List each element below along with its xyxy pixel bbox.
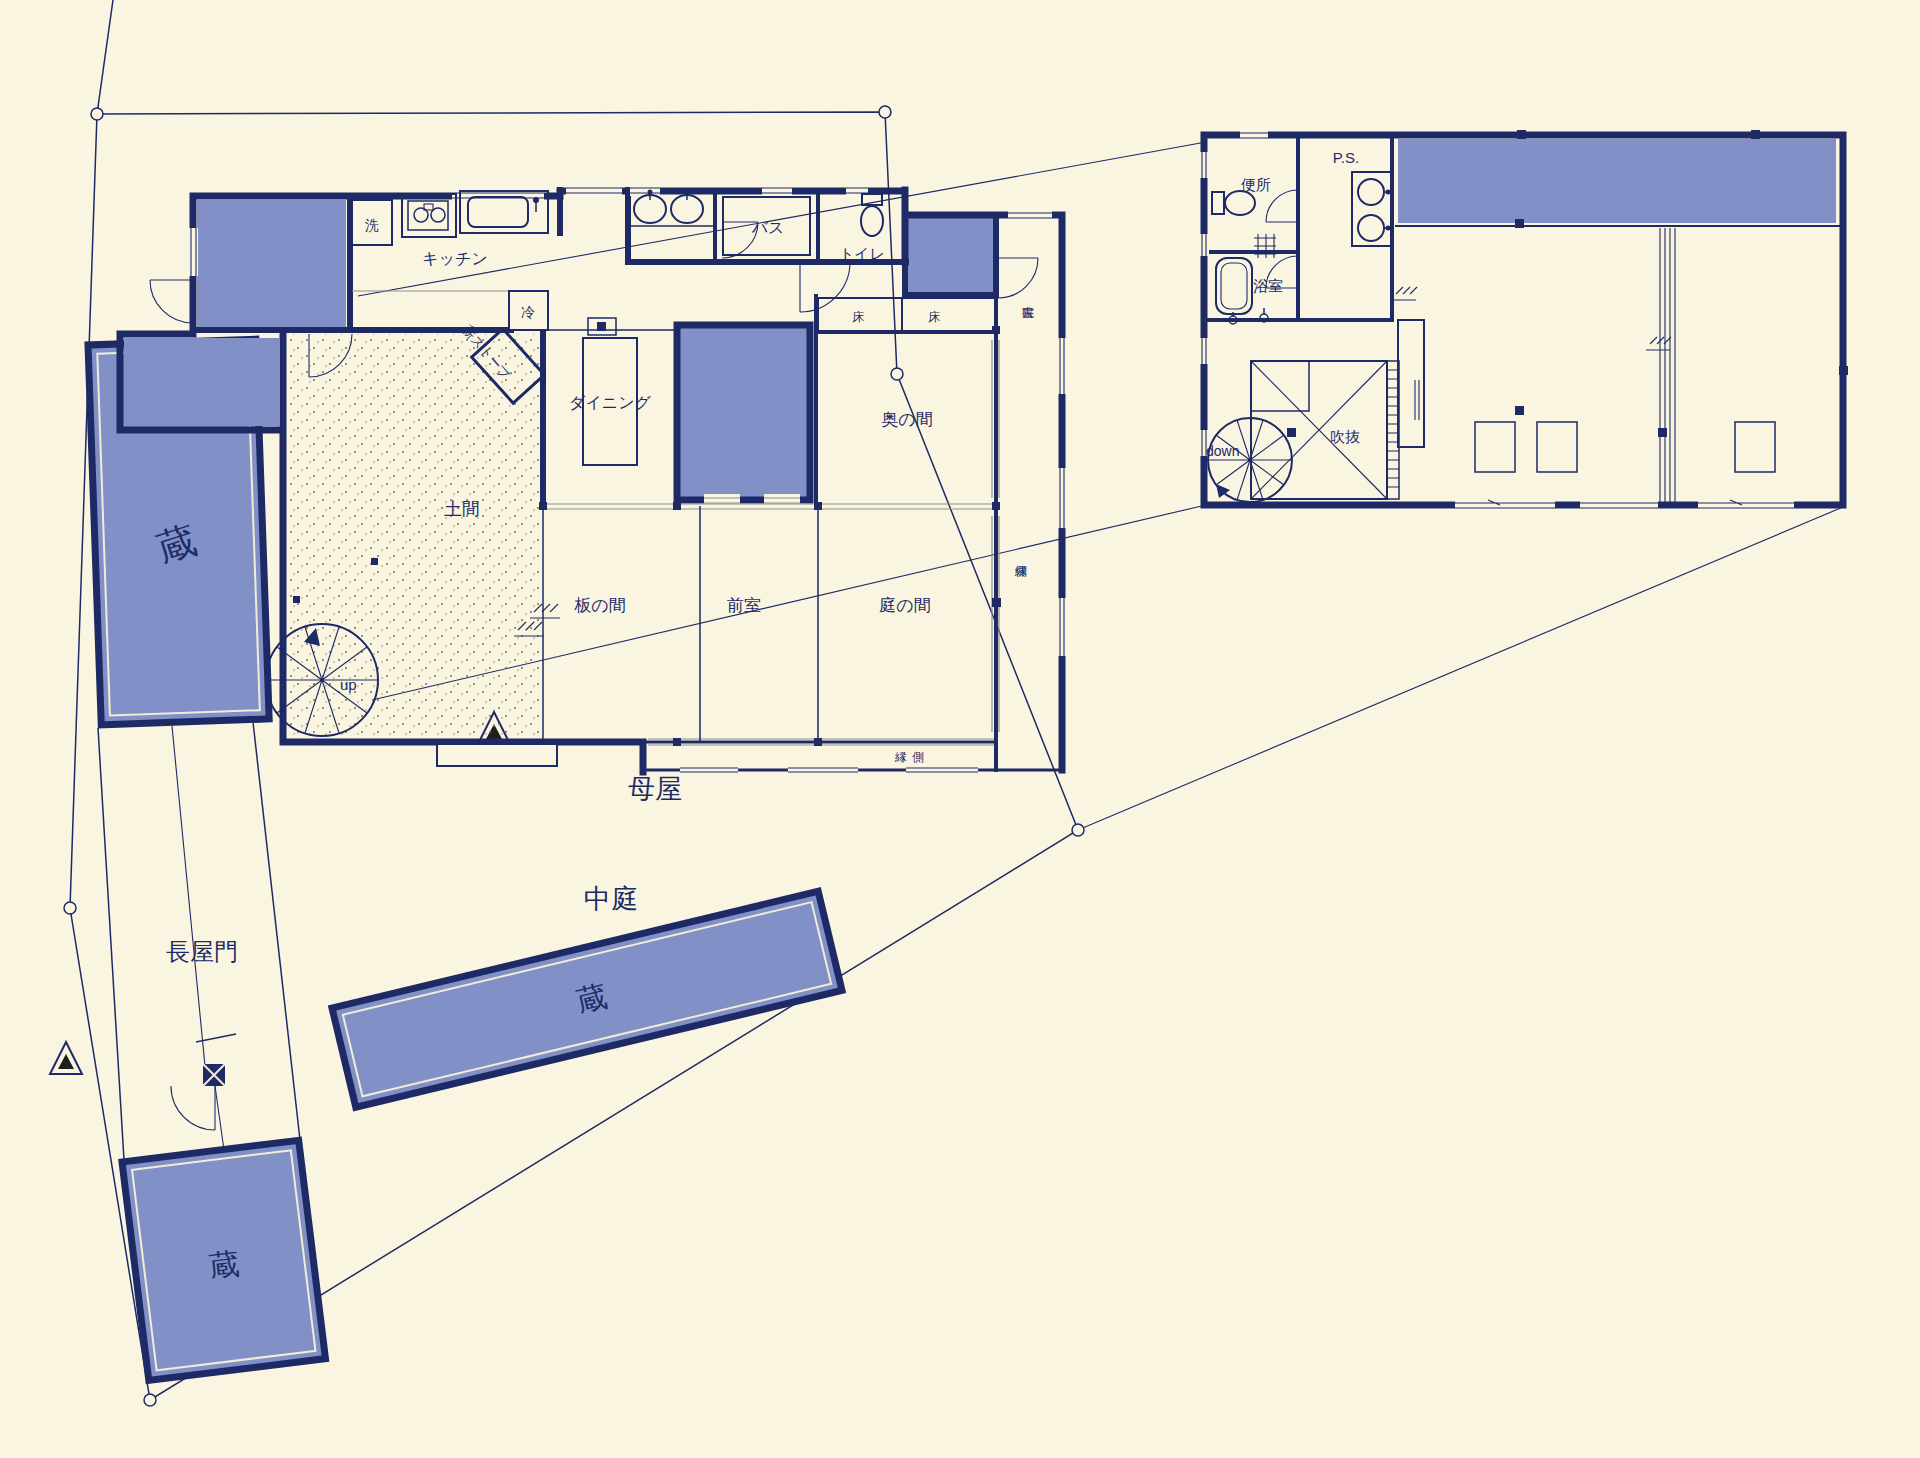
storehouse-south: 蔵: [332, 891, 842, 1107]
f2-partition: [1660, 228, 1675, 503]
floor-plan-page: 蔵 蔵 蔵 長屋門 母屋 中庭: [0, 0, 1920, 1458]
zabuton-icon: [1735, 422, 1775, 472]
entry-porch-step: [437, 744, 557, 766]
itanoma-label: 板の間: [574, 596, 625, 615]
wash-label: 洗: [365, 218, 379, 233]
tokonoma-alcove: [818, 298, 996, 332]
tokonoma-right-label: 床: [928, 310, 940, 324]
entry-door-arc-icon: [150, 280, 193, 323]
corner-marker-icon: [879, 106, 891, 118]
main-house-label: 母屋: [628, 774, 682, 804]
corner-marker-icon: [144, 1394, 156, 1406]
f2-door-arcs: [1266, 190, 1298, 288]
niwanoma-label: 庭の間: [879, 596, 930, 615]
f2-washstand-icon: [1352, 172, 1392, 246]
zabuton-icon: [1537, 422, 1577, 472]
f2-toilet-label: 便所: [1240, 177, 1271, 193]
gatehouse-center-line-lower: [215, 1086, 224, 1150]
dining-table-icon: [583, 318, 637, 465]
fridge-label: 冷: [521, 305, 535, 320]
gatehouse-center-line: [172, 726, 205, 1066]
zenshitsu-label: 前室: [727, 596, 761, 615]
doma-label: 土間: [444, 499, 480, 519]
zabuton-icon: [1475, 422, 1515, 472]
corner-marker-icon: [64, 902, 76, 914]
bath-label: バス: [751, 219, 785, 236]
f2-bathroom-label: 浴室: [1253, 278, 1283, 294]
void-area: [1251, 361, 1387, 499]
storehouse-southwest: 蔵: [122, 1140, 325, 1380]
f2-right-rooms: [1398, 228, 1775, 503]
f2-void-label: 吹抜: [1330, 429, 1360, 445]
spiral-stair-down-icon: down: [1206, 418, 1292, 502]
f2-inner-walls: [1204, 135, 1392, 320]
corner-marker-icon: [1072, 824, 1084, 836]
stair-down-label: down: [1206, 443, 1239, 459]
gate-door-arc-icon: [171, 1086, 215, 1130]
storage-room-ne: [905, 215, 996, 295]
gatehouse-label: 長屋門: [166, 939, 238, 965]
second-floor-plan: down: [1199, 130, 1848, 510]
f2-toilet-icon: [1212, 191, 1255, 215]
storage-room-center: [677, 325, 810, 500]
storage-room-nw-fill: [197, 200, 346, 327]
engawa-south-label: 縁側: [894, 750, 929, 764]
ne-room-door-arc-icon: [998, 258, 1038, 298]
stove-icon: [402, 194, 456, 237]
gatehouse-east-line: [253, 722, 300, 1140]
kitchen-label: キッチン: [422, 250, 488, 267]
corner-marker-icon: [91, 108, 103, 120]
stair-up-label: up: [340, 676, 357, 693]
dining-label: ダイニング: [569, 394, 652, 411]
toilet-label: トイレ: [839, 246, 885, 262]
gatehouse: 長屋門: [98, 722, 300, 1160]
storehouse-southwest-label: 蔵: [207, 1247, 241, 1283]
courtyard-label: 中庭: [584, 884, 638, 914]
corner-marker-icon: [891, 368, 903, 380]
kitchen-sink-icon: [460, 191, 548, 233]
gatehouse-west-line: [98, 728, 124, 1160]
floor-plan-drawing: 蔵 蔵 蔵 長屋門 母屋 中庭: [0, 0, 1920, 1458]
toilet-icon: [861, 194, 883, 236]
f2-ps-label: P.S.: [1333, 149, 1359, 166]
f2-hatch-icon: [1392, 287, 1671, 350]
shoin-label: 書院: [1022, 307, 1034, 319]
engawa-east-label: 縁側: [1015, 565, 1028, 578]
f2-toilet-door-arc-icon: [1266, 190, 1298, 222]
storage-room-w-fill: [124, 338, 279, 426]
tokonoma-left-label: 床: [852, 310, 864, 324]
doma-earth-floor: [287, 334, 540, 740]
survey-triangle-icon: [50, 1042, 82, 1074]
toilet-hall-door-arc-icon: [800, 262, 850, 312]
okunoma-label: 奥の間: [881, 410, 932, 429]
balcony-fill: [1398, 139, 1836, 223]
projection-line-right: [1078, 507, 1843, 830]
